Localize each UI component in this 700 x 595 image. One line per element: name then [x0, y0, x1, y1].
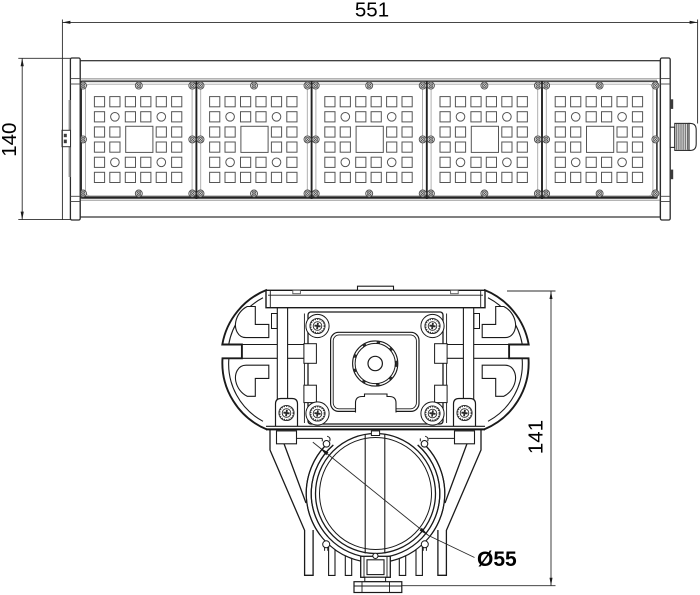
svg-text:140: 140 [0, 123, 21, 157]
svg-text:551: 551 [355, 0, 389, 21]
svg-text:Ø55: Ø55 [477, 548, 517, 571]
svg-text:141: 141 [525, 420, 548, 454]
